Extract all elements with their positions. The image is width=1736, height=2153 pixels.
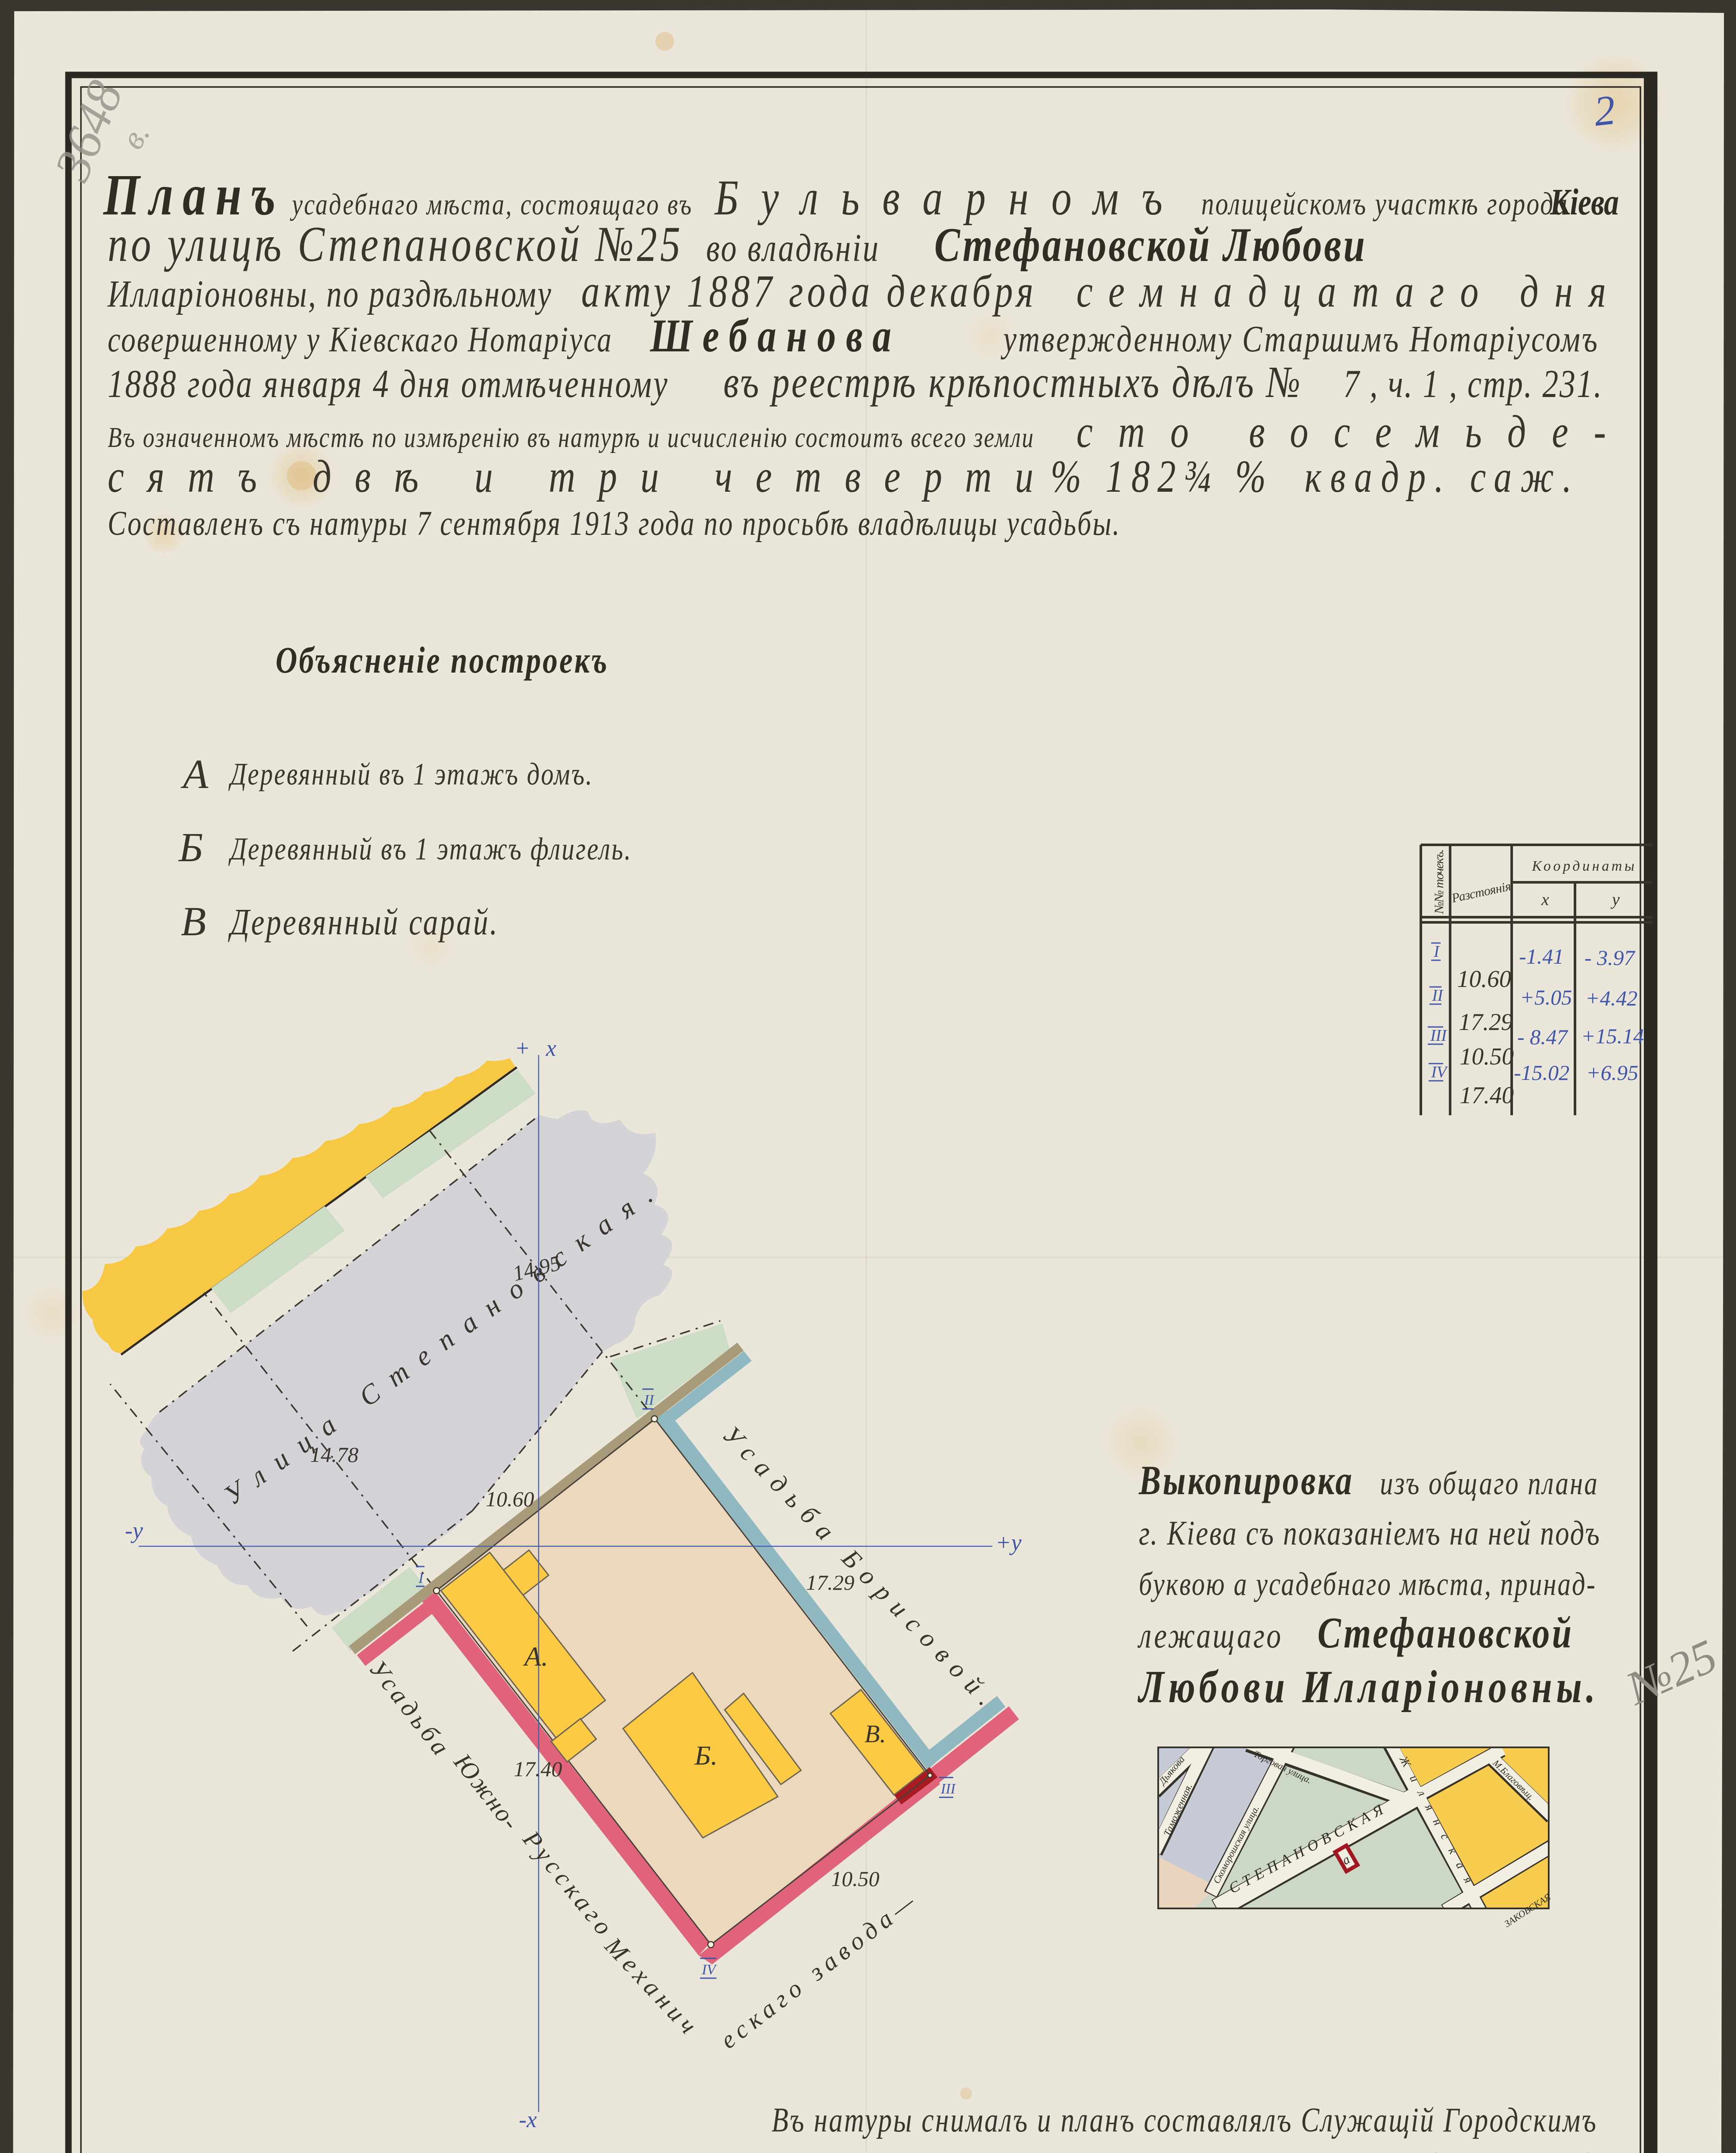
svg-text:-1.41: -1.41 bbox=[1519, 944, 1564, 968]
svg-text:+: + bbox=[515, 1035, 530, 1061]
svg-text:квадр. саж.: квадр. саж. bbox=[1305, 452, 1572, 502]
svg-text:Кіева: Кіева bbox=[1550, 182, 1619, 223]
svg-text:IV: IV bbox=[1431, 1063, 1448, 1081]
svg-text:Деревянный въ 1 этажъ домъ.: Деревянный въ 1 этажъ домъ. bbox=[228, 757, 592, 792]
svg-text:7 , ч. 1 , стр. 231.: 7 , ч. 1 , стр. 231. bbox=[1343, 362, 1602, 406]
svg-text:x: x bbox=[546, 1035, 556, 1061]
svg-text:- 8.47: - 8.47 bbox=[1517, 1025, 1569, 1049]
svg-text:Б.: Б. bbox=[694, 1740, 718, 1771]
svg-text:изъ общаго плана: изъ общаго плана bbox=[1380, 1465, 1597, 1502]
svg-text:полицейскомъ участкѣ города: полицейскомъ участкѣ города bbox=[1201, 186, 1567, 222]
svg-text:+4.42: +4.42 bbox=[1585, 986, 1637, 1010]
svg-text:А: А bbox=[180, 751, 208, 797]
svg-text:III: III bbox=[1430, 1027, 1448, 1045]
svg-text:Любови Илларіоновны.: Любови Илларіоновны. bbox=[1137, 1661, 1595, 1712]
svg-text:+6.95: +6.95 bbox=[1586, 1061, 1638, 1085]
svg-text:+5.05: +5.05 bbox=[1520, 985, 1572, 1009]
svg-text:утвержденному Старшимъ Нотар: утвержденному Старшимъ Нотаріусомъ bbox=[1001, 319, 1597, 360]
svg-text:Шебанова: Шебанова bbox=[650, 310, 891, 362]
svg-text:Составленъ съ натуры 7 сентябр: Составленъ съ натуры 7 сентября 1913 год… bbox=[108, 504, 1119, 542]
svg-text:буквою а усадебнаго мѣста, при: буквою а усадебнаго мѣста, принад- bbox=[1139, 1566, 1595, 1602]
svg-text:+у: +у bbox=[995, 1529, 1021, 1555]
svg-text:Б: Б bbox=[178, 824, 203, 870]
svg-text:Координаты: Координаты bbox=[1531, 858, 1634, 874]
svg-text:II: II bbox=[1432, 987, 1444, 1005]
svg-text:Выкопировка: Выкопировка bbox=[1138, 1458, 1352, 1503]
svg-text:II: II bbox=[644, 1392, 654, 1408]
svg-text:10.60: 10.60 bbox=[486, 1487, 534, 1511]
svg-text:10.60: 10.60 bbox=[1457, 966, 1511, 993]
svg-text:17.29: 17.29 bbox=[1459, 1009, 1513, 1036]
svg-text:совершенному у Кіевскаго Нотар: совершенному у Кіевскаго Нотаріуса bbox=[108, 320, 611, 360]
svg-text:-у: -у bbox=[125, 1517, 143, 1543]
svg-text:y: y bbox=[1610, 890, 1620, 909]
svg-text:Землемѣромъ при Межевомъ Отдѣл: Землемѣромъ при Межевомъ Отдѣлѣ Кіевской… bbox=[772, 2146, 1590, 2153]
svg-text:акту 1887 года декабря: акту 1887 года декабря bbox=[581, 266, 1033, 316]
svg-text:-x: -x bbox=[519, 2106, 537, 2132]
svg-text:№№ точекъ.: №№ точекъ. bbox=[1432, 849, 1446, 914]
svg-text:I: I bbox=[418, 1570, 424, 1586]
svg-text:14.78: 14.78 bbox=[310, 1443, 359, 1467]
svg-text:А.: А. bbox=[523, 1641, 548, 1672]
svg-text:17.40: 17.40 bbox=[1460, 1082, 1514, 1109]
svg-text:x: x bbox=[1541, 890, 1549, 909]
svg-text:III: III bbox=[940, 1781, 956, 1797]
svg-text:10.50: 10.50 bbox=[831, 1867, 880, 1891]
svg-text:IV: IV bbox=[701, 1962, 717, 1978]
svg-text:Деревянный въ 1 этажъ флигель.: Деревянный въ 1 этажъ флигель. bbox=[228, 831, 631, 867]
svg-text:+15.14: +15.14 bbox=[1581, 1024, 1644, 1048]
svg-text:В.: В. bbox=[865, 1720, 886, 1748]
svg-text:Стефановской: Стефановской bbox=[1317, 1608, 1572, 1657]
svg-text:В: В bbox=[181, 898, 206, 944]
svg-text:17.40: 17.40 bbox=[514, 1757, 562, 1781]
svg-text:10.50: 10.50 bbox=[1460, 1043, 1514, 1070]
svg-text:- 3.97: - 3.97 bbox=[1584, 946, 1636, 970]
svg-text:Въ означенномъ мѣстѣ по измѣре: Въ означенномъ мѣстѣ по измѣренію въ нат… bbox=[108, 422, 1033, 453]
svg-text:Илларіоновны, по раздѣльному: Илларіоновны, по раздѣльному bbox=[107, 273, 551, 315]
svg-text:Деревянный сарай.: Деревянный сарай. bbox=[228, 902, 497, 943]
svg-text:I: I bbox=[1433, 943, 1440, 961]
svg-text:1888 года января 4 дня отмѣчен: 1888 года января 4 дня отмѣченному bbox=[108, 362, 668, 406]
svg-text:Въ натуры снималъ и планъ сост: Въ натуры снималъ и планъ составлялъ Слу… bbox=[772, 2100, 1596, 2139]
svg-text:лежащаго: лежащаго bbox=[1137, 1616, 1281, 1656]
svg-text:сятъ двѣ и три четверти: сятъ двѣ и три четверти bbox=[108, 451, 1033, 502]
svg-text:Объясненіе построекъ: Объясненіе построекъ bbox=[276, 640, 607, 681]
svg-text:Стефановской Любови: Стефановской Любови bbox=[934, 218, 1365, 272]
svg-text:во владѣніи: во владѣніи bbox=[706, 226, 878, 269]
svg-text:-15.02: -15.02 bbox=[1514, 1061, 1569, 1085]
